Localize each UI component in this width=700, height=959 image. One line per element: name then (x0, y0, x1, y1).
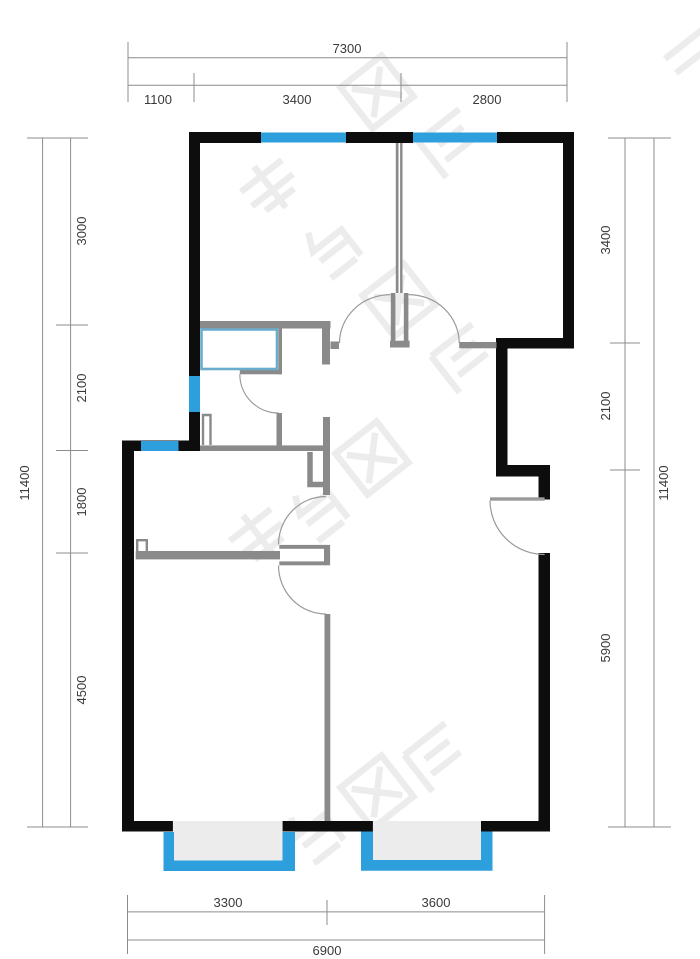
svg-text:11400: 11400 (17, 465, 32, 500)
svg-text:4500: 4500 (74, 676, 89, 705)
svg-text:3600: 3600 (422, 895, 451, 910)
svg-text:2100: 2100 (598, 392, 613, 421)
svg-text:6900: 6900 (313, 943, 342, 958)
svg-text:3300: 3300 (214, 895, 243, 910)
svg-text:11400: 11400 (656, 465, 671, 500)
svg-text:7300: 7300 (333, 41, 362, 56)
svg-text:2100: 2100 (74, 374, 89, 403)
svg-text:3400: 3400 (598, 226, 613, 255)
svg-text:5900: 5900 (598, 634, 613, 663)
svg-text:2800: 2800 (473, 92, 502, 107)
svg-text:3000: 3000 (74, 217, 89, 246)
svg-text:1100: 1100 (144, 92, 172, 107)
svg-text:3400: 3400 (283, 92, 312, 107)
svg-text:1800: 1800 (74, 488, 89, 517)
